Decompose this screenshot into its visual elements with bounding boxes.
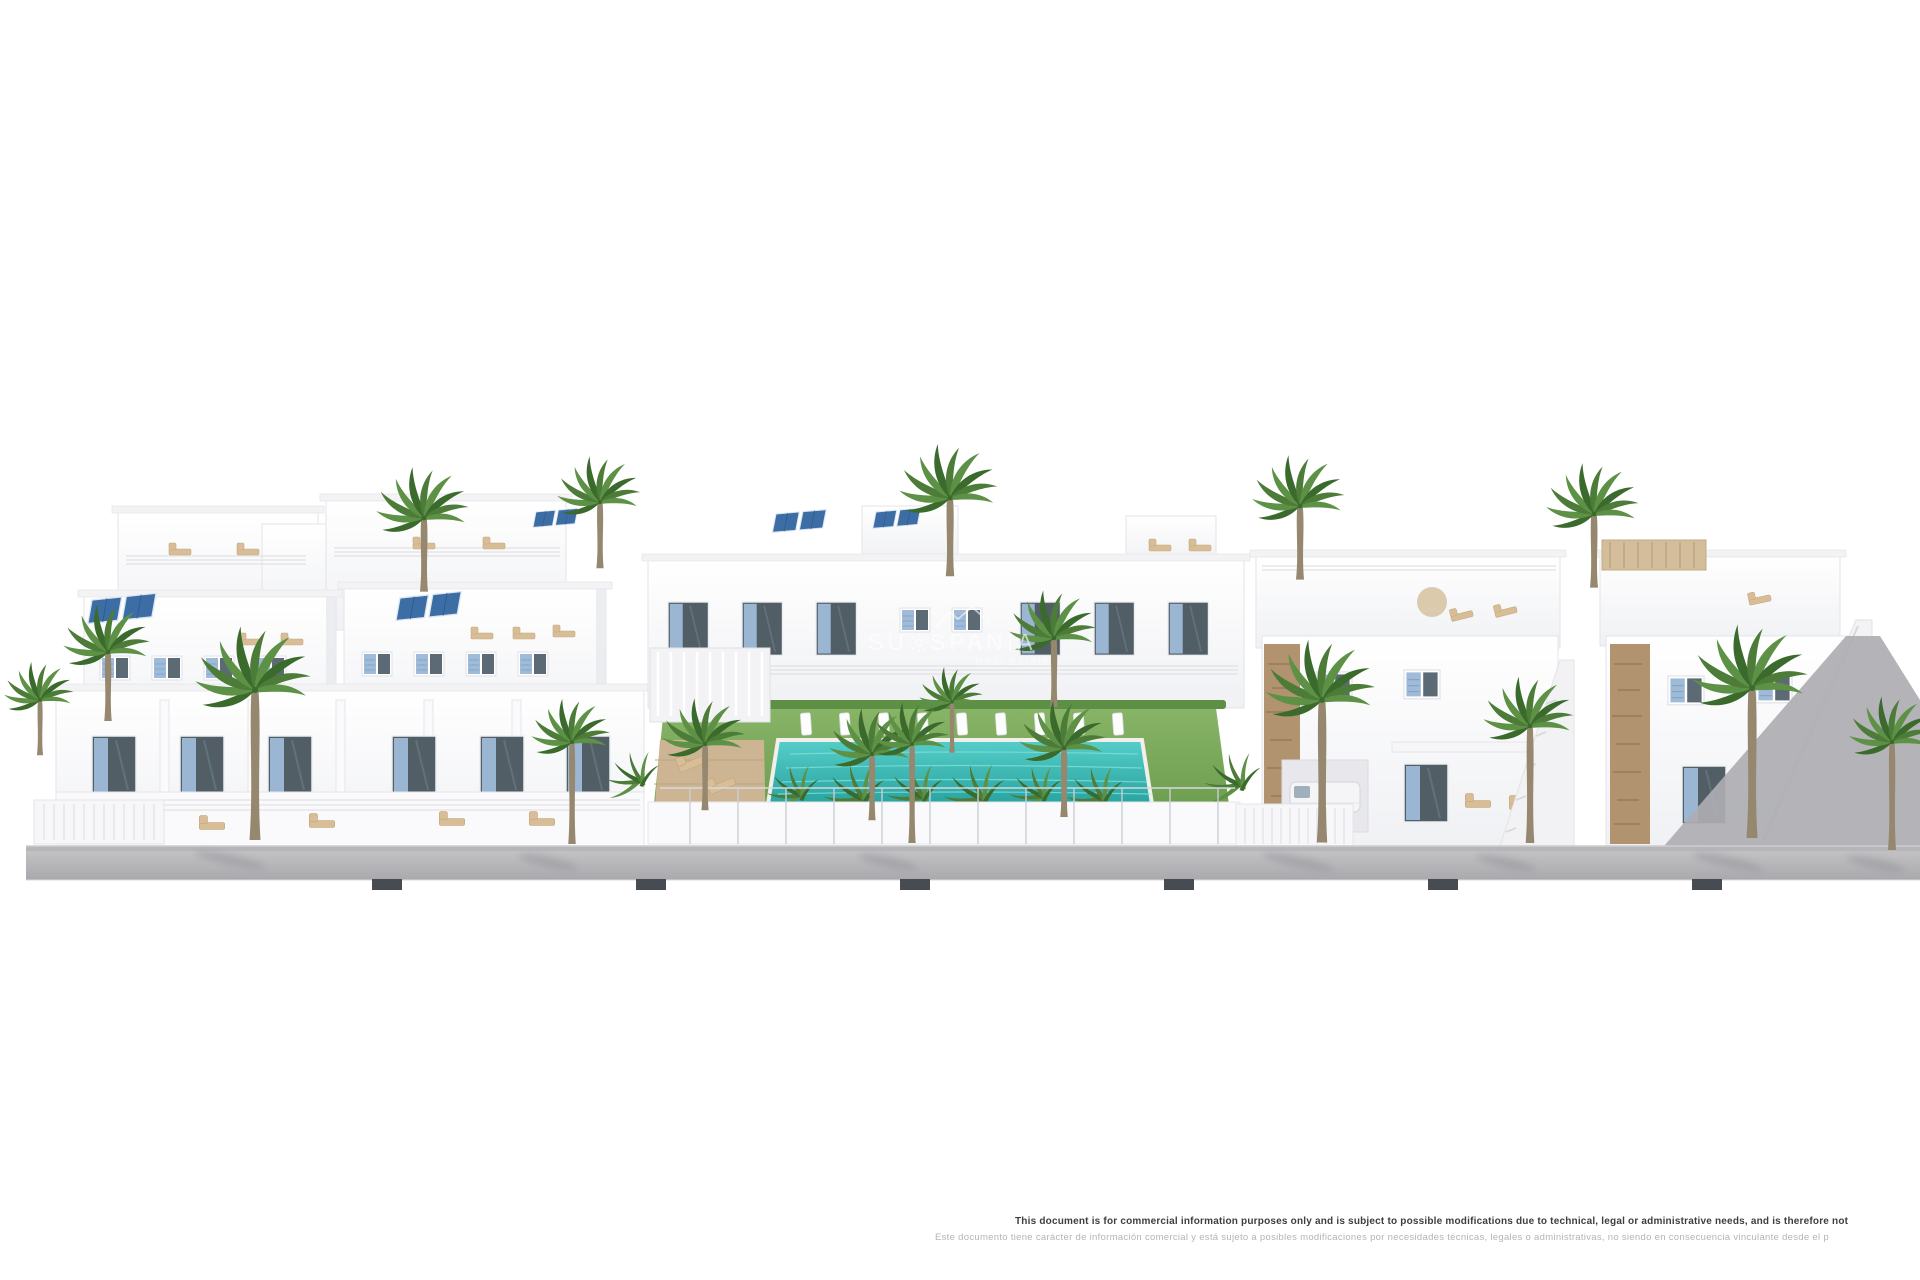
disclaimer-english: This document is for commercial informat… [1015,1216,1848,1227]
street [26,846,1920,890]
render-page: SU SPANIA Real Estate This document is f… [0,0,1920,1280]
parasol [1417,587,1447,617]
perimeter-fence [1236,804,1353,848]
disclaimer-spanish: Este documento tiene carácter de informa… [935,1232,1829,1243]
perimeter-fence [34,800,164,844]
property-render [0,0,1920,1280]
left-apartment-block [34,494,650,846]
pergola [650,648,770,722]
palm-tree [556,455,641,568]
wood-pergola [1602,540,1706,570]
curb-blocks [372,879,1722,890]
garden-wall [648,802,1240,844]
